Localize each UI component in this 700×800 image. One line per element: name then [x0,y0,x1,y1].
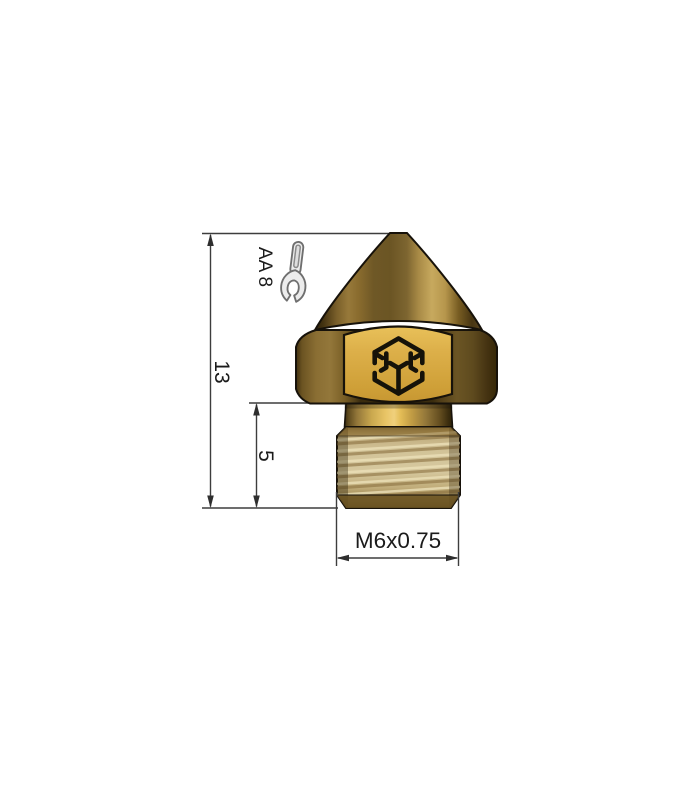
wrench-size-label: AA 8 [252,237,276,297]
thread-length-dimension-label: 5 [253,436,277,476]
product-drawing-canvas: AA 8 13 5 M6x0.75 [0,0,700,800]
arrowhead-down [207,496,214,509]
nozzle-body [296,233,497,508]
nozzle-cone [315,233,482,330]
thread-top-chamfer [337,427,460,436]
nozzle-technical-drawing [0,0,700,800]
overall-height-dimension-label: 13 [209,352,233,392]
wrench-jaw [279,269,307,303]
thread-bottom-chamfer [337,495,460,508]
arrowhead-left [337,555,350,562]
arrowhead-down [253,496,260,509]
thread-spec-dimension-label: M6x0.75 [328,529,468,553]
arrowhead-up [207,234,214,247]
arrowhead-up [253,403,260,416]
arrowhead-right [446,555,459,562]
